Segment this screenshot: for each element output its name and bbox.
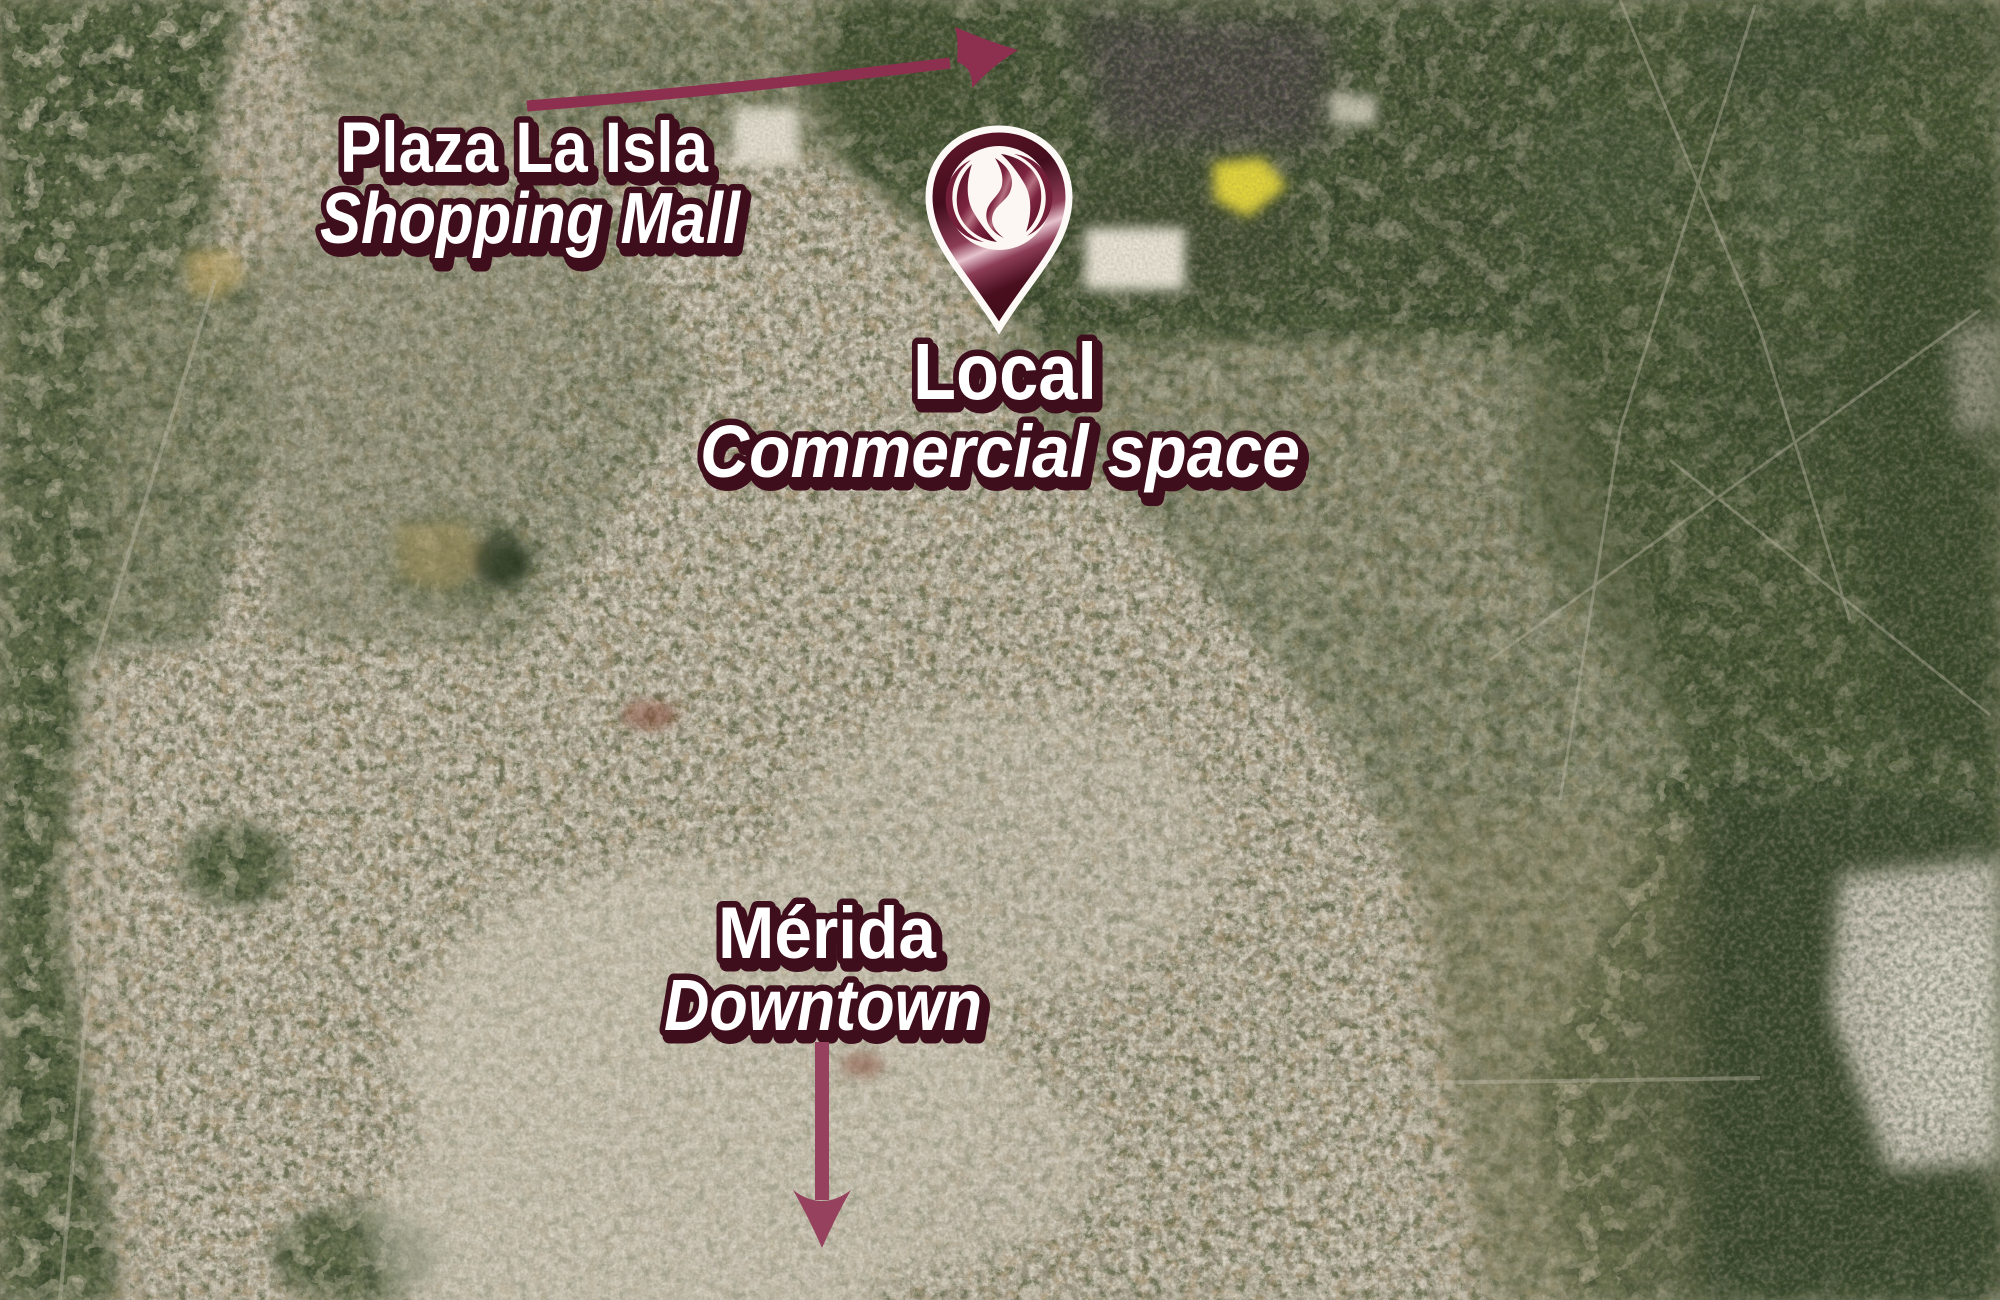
svg-text:Mérida: Mérida [718,893,937,974]
svg-text:Local: Local [913,327,1097,416]
svg-text:Downtown: Downtown [664,966,982,1046]
svg-text:Plaza La Isla: Plaza La Isla [340,109,708,188]
svg-text:Shopping Mall: Shopping Mall [320,179,742,259]
svg-text:Commercial space: Commercial space [700,410,1300,493]
